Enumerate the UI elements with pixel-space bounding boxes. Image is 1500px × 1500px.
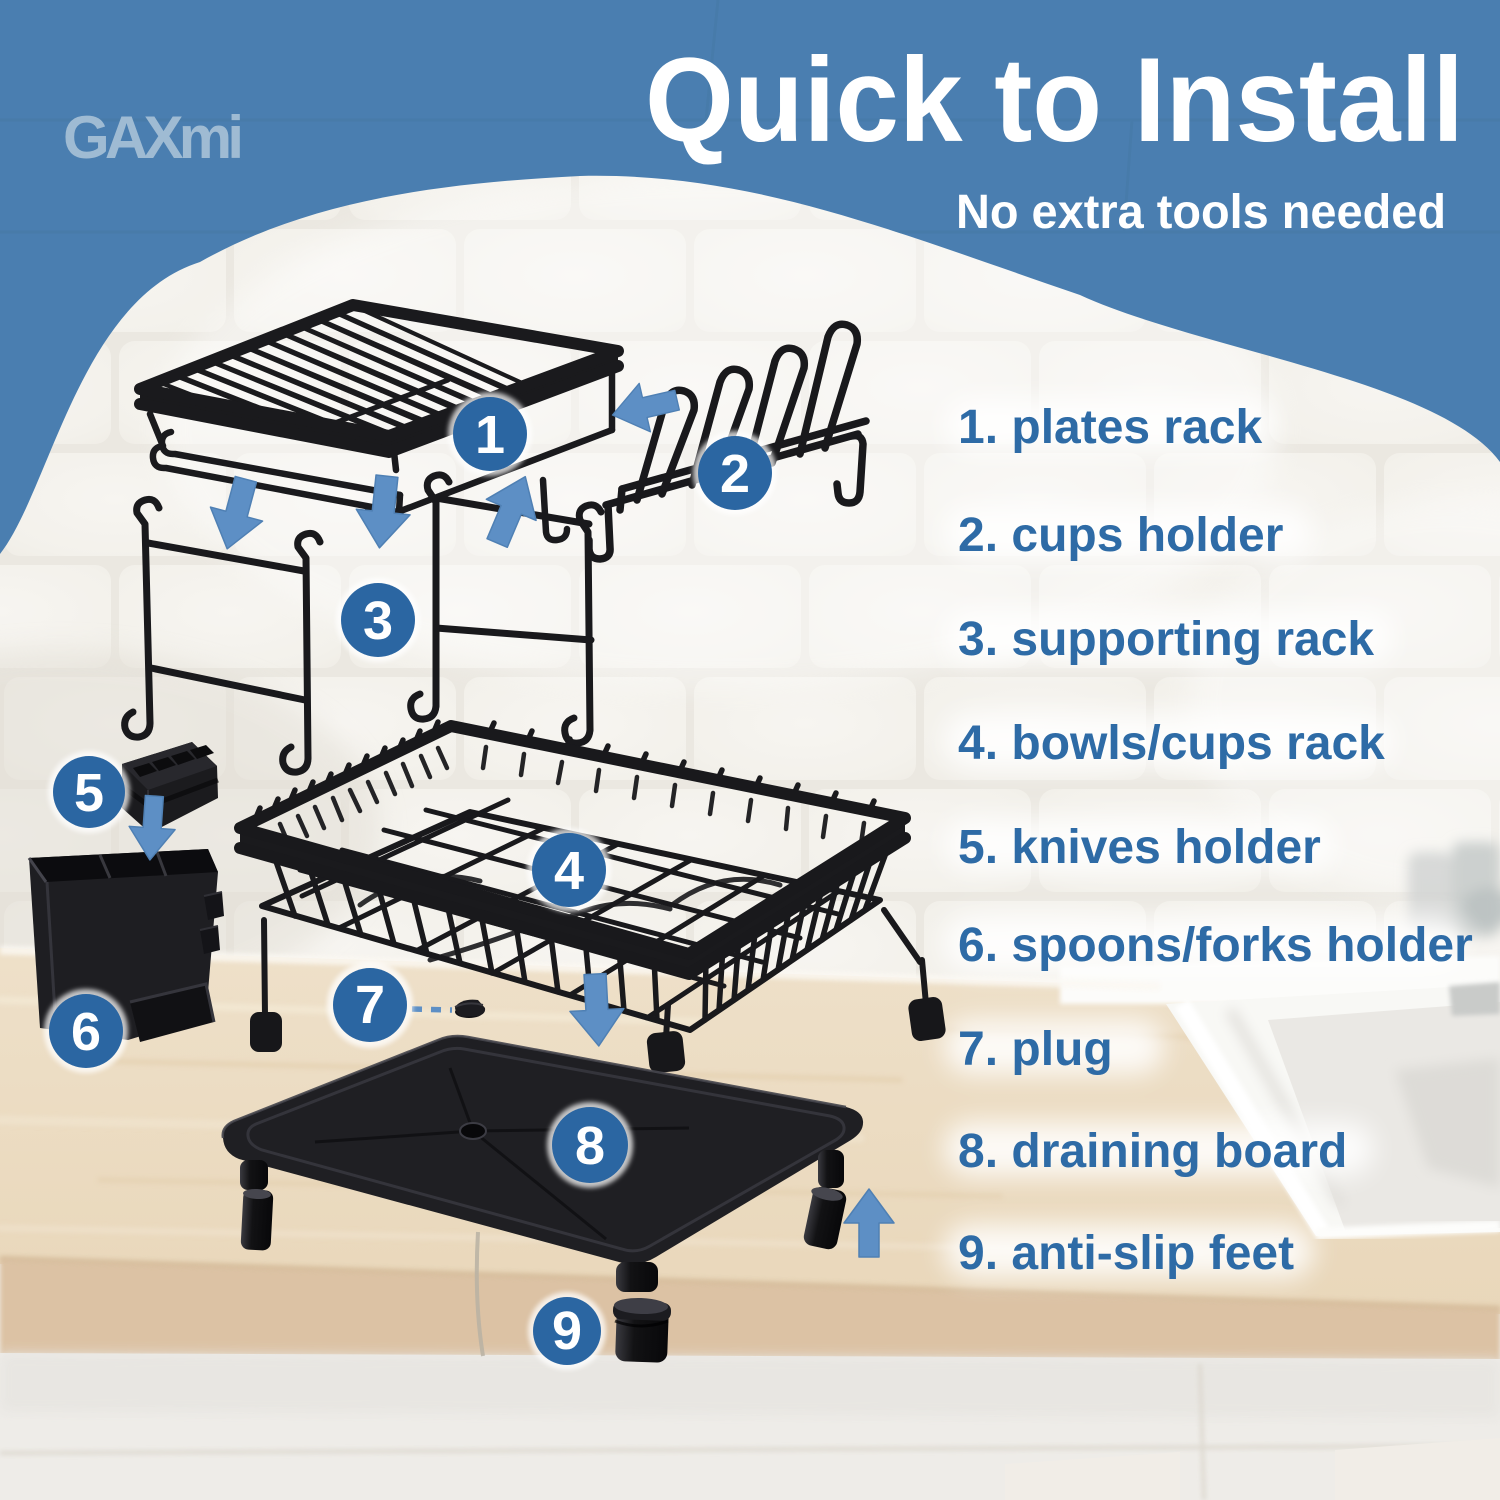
svg-text:2: 2 — [720, 444, 750, 504]
svg-text:Quick to Install: Quick to Install — [645, 33, 1464, 167]
svg-text:3: 3 — [363, 591, 393, 651]
svg-text:6: 6 — [71, 1002, 101, 1062]
svg-text:5. knives holder: 5. knives holder — [958, 821, 1321, 874]
svg-text:1: 1 — [475, 405, 505, 465]
svg-text:3. supporting rack: 3. supporting rack — [958, 613, 1374, 666]
svg-text:2. cups holder: 2. cups holder — [958, 509, 1283, 562]
svg-text:4: 4 — [554, 841, 584, 901]
svg-text:GAXmi: GAXmi — [63, 104, 244, 171]
svg-text:No extra tools needed: No extra tools needed — [956, 186, 1446, 239]
svg-text:9. anti-slip feet: 9. anti-slip feet — [958, 1227, 1294, 1280]
svg-text:7. plug: 7. plug — [958, 1023, 1113, 1076]
svg-text:8. draining board: 8. draining board — [958, 1125, 1347, 1178]
svg-text:7: 7 — [355, 975, 385, 1035]
svg-text:9: 9 — [552, 1301, 582, 1361]
svg-text:4. bowls/cups rack: 4. bowls/cups rack — [958, 717, 1385, 770]
svg-text:6. spoons/forks holder: 6. spoons/forks holder — [958, 919, 1473, 972]
svg-text:5: 5 — [74, 763, 104, 823]
svg-text:8: 8 — [575, 1116, 605, 1176]
svg-text:1. plates rack: 1. plates rack — [958, 401, 1263, 454]
